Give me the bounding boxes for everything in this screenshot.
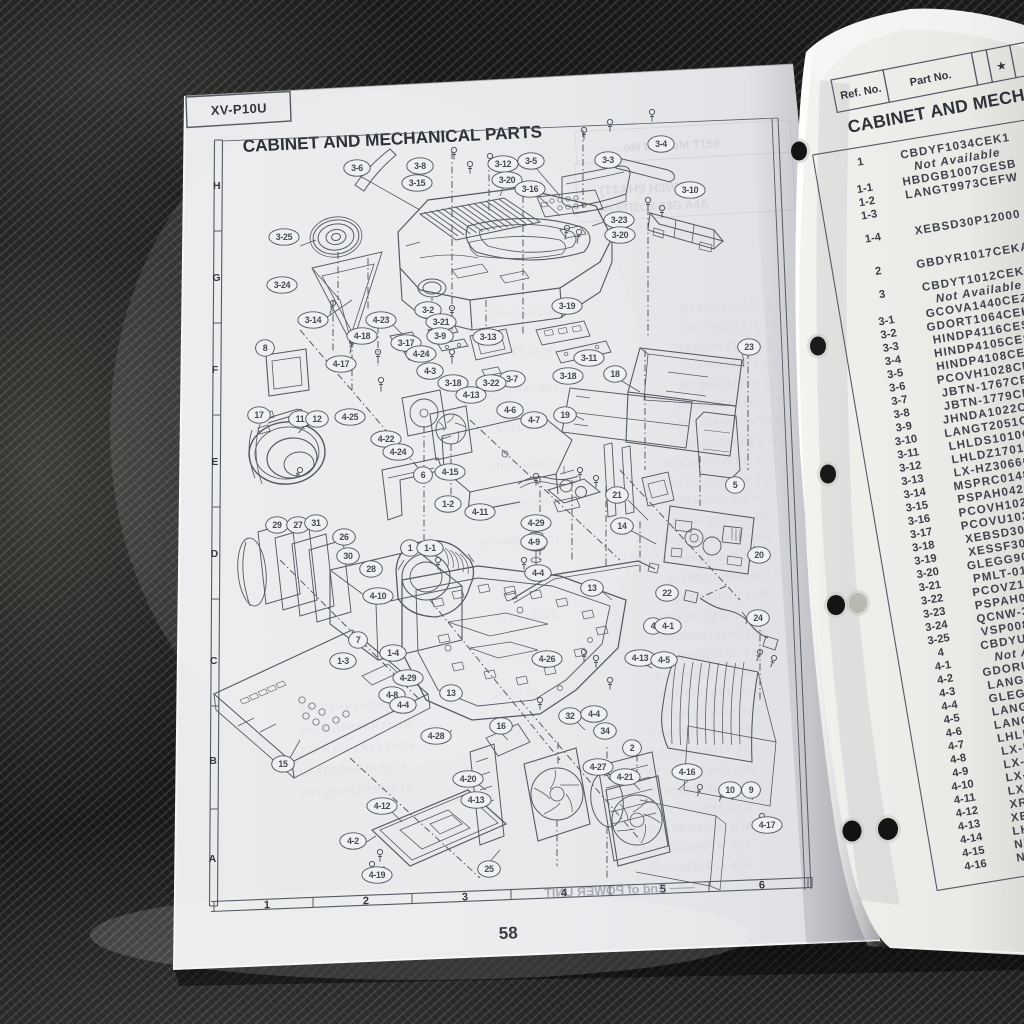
svg-text:2: 2	[363, 895, 370, 907]
svg-text:5: 5	[733, 480, 738, 490]
svg-text:3-21: 3-21	[433, 317, 450, 327]
svg-text:1-3: 1-3	[860, 208, 878, 222]
svg-text:4-11: 4-11	[472, 507, 488, 517]
svg-text:11: 11	[296, 414, 305, 424]
svg-text:4-27: 4-27	[590, 762, 607, 772]
svg-text:22: 22	[662, 588, 672, 598]
svg-text:4-12: 4-12	[374, 801, 391, 811]
svg-text:E: E	[211, 456, 218, 468]
svg-text:3-17: 3-17	[398, 338, 415, 348]
svg-text:4-29: 4-29	[528, 518, 545, 528]
svg-text:4-24: 4-24	[413, 349, 430, 359]
svg-text:3-12: 3-12	[495, 159, 512, 169]
svg-text:16: 16	[496, 721, 506, 731]
svg-text:3-8: 3-8	[414, 161, 426, 171]
svg-text:4-3: 4-3	[424, 366, 436, 376]
svg-text:58: 58	[498, 923, 518, 943]
svg-text:4-10: 4-10	[370, 591, 387, 601]
svg-text:4-13: 4-13	[632, 653, 649, 663]
svg-text:26: 26	[339, 532, 349, 542]
svg-text:3-24: 3-24	[274, 280, 291, 290]
svg-text:8: 8	[263, 343, 268, 353]
svg-text:3-5: 3-5	[886, 367, 904, 381]
svg-text:4-6: 4-6	[504, 405, 516, 415]
svg-text:3-6: 3-6	[888, 380, 906, 394]
svg-text:4-29: 4-29	[400, 673, 417, 683]
svg-text:7: 7	[356, 635, 361, 645]
svg-text:4-17: 4-17	[333, 359, 350, 369]
svg-text:3-22: 3-22	[483, 378, 500, 388]
svg-text:3-15: 3-15	[409, 178, 426, 188]
svg-text:1-3: 1-3	[337, 656, 349, 666]
svg-text:6: 6	[421, 470, 426, 480]
svg-text:3-20: 3-20	[612, 230, 629, 240]
svg-text:1: 1	[408, 543, 413, 553]
svg-text:3-20: 3-20	[499, 175, 516, 185]
svg-text:4-16: 4-16	[679, 767, 696, 777]
svg-text:4-9: 4-9	[528, 537, 540, 547]
svg-text:4-8: 4-8	[949, 752, 967, 766]
svg-text:30: 30	[343, 551, 353, 561]
svg-text:4-15: 4-15	[442, 467, 459, 477]
svg-text:32: 32	[565, 711, 575, 721]
svg-text:3-2: 3-2	[422, 305, 434, 315]
svg-text:3-9: 3-9	[434, 331, 446, 341]
svg-text:3-4: 3-4	[655, 139, 667, 149]
svg-text:3-18: 3-18	[445, 378, 462, 388]
svg-text:B: B	[209, 755, 217, 767]
svg-text:18: 18	[610, 369, 620, 379]
svg-text:15: 15	[278, 759, 288, 769]
svg-text:XV-P10U: XV-P10U	[210, 100, 267, 118]
svg-text:3-5: 3-5	[525, 156, 537, 166]
svg-text:F: F	[212, 364, 219, 376]
svg-text:4-9: 4-9	[951, 765, 969, 779]
svg-text:23: 23	[744, 342, 754, 352]
svg-text:1-2: 1-2	[858, 195, 876, 209]
svg-text:4-19: 4-19	[369, 870, 386, 880]
svg-text:31: 31	[311, 518, 321, 528]
svg-text:3-18: 3-18	[560, 371, 577, 381]
svg-text:3-19: 3-19	[559, 301, 576, 311]
svg-text:4-24: 4-24	[390, 447, 407, 457]
svg-text:A: A	[209, 853, 217, 865]
svg-text:x: x	[598, 877, 606, 891]
svg-text:6: 6	[759, 879, 766, 891]
svg-text:34: 34	[600, 726, 610, 736]
svg-text:4-7: 4-7	[528, 415, 540, 425]
svg-text:4-13: 4-13	[463, 390, 480, 400]
svg-text:13: 13	[446, 688, 456, 698]
svg-text:3-13: 3-13	[480, 332, 497, 342]
svg-text:3-9: 3-9	[895, 420, 913, 434]
svg-text:28: 28	[366, 564, 376, 574]
svg-text:4-20: 4-20	[460, 774, 477, 784]
svg-text:1-1: 1-1	[856, 182, 874, 196]
svg-text:4-5: 4-5	[658, 655, 670, 665]
svg-text:3-7: 3-7	[506, 374, 518, 384]
svg-text:3-23: 3-23	[611, 215, 628, 225]
svg-text:9: 9	[749, 785, 754, 795]
svg-text:3-3: 3-3	[602, 155, 614, 165]
svg-text:25: 25	[484, 864, 494, 874]
svg-text:4-21: 4-21	[617, 772, 634, 782]
svg-text:1-1: 1-1	[424, 543, 436, 553]
svg-text:4-18: 4-18	[354, 331, 371, 341]
svg-text:17: 17	[254, 410, 264, 420]
svg-text:3-25: 3-25	[276, 232, 293, 242]
svg-text:2: 2	[630, 743, 635, 753]
svg-text:4-23: 4-23	[373, 315, 390, 325]
svg-text:3-14: 3-14	[305, 315, 322, 325]
svg-text:4-25: 4-25	[342, 412, 359, 422]
svg-text:29: 29	[272, 520, 282, 530]
svg-text:3-16: 3-16	[522, 184, 539, 194]
svg-text:3-11: 3-11	[581, 353, 597, 363]
svg-text:1: 1	[264, 899, 271, 911]
svg-text:C: C	[210, 655, 218, 667]
svg-text:19: 19	[560, 410, 570, 420]
svg-text:3-3: 3-3	[882, 341, 900, 355]
svg-text:13: 13	[587, 583, 597, 593]
svg-text:H: H	[213, 180, 221, 192]
svg-text:10: 10	[725, 785, 735, 795]
svg-text:4-3: 4-3	[938, 686, 956, 700]
svg-text:4-4: 4-4	[588, 709, 600, 719]
svg-text:4-2: 4-2	[347, 836, 359, 846]
svg-text:G: G	[212, 272, 220, 284]
svg-text:4-4: 4-4	[532, 568, 544, 578]
svg-text:14: 14	[617, 521, 627, 531]
svg-text:3-6: 3-6	[351, 163, 363, 173]
svg-text:27: 27	[293, 520, 303, 530]
svg-text:24: 24	[753, 613, 763, 623]
svg-text:4-1: 4-1	[662, 621, 674, 631]
svg-text:1-4: 1-4	[387, 648, 399, 658]
svg-text:4-22: 4-22	[378, 434, 395, 444]
svg-text:12: 12	[312, 414, 322, 424]
svg-text:20: 20	[754, 550, 764, 560]
svg-text:4-26: 4-26	[539, 654, 556, 664]
svg-text:4-17: 4-17	[759, 820, 776, 830]
svg-text:4-28: 4-28	[428, 731, 445, 741]
svg-text:1-2: 1-2	[442, 499, 454, 509]
svg-text:4-13: 4-13	[468, 795, 485, 805]
svg-text:4-4: 4-4	[397, 700, 409, 710]
svg-text:D: D	[211, 548, 219, 560]
svg-text:3-10: 3-10	[682, 185, 699, 195]
svg-text:21: 21	[612, 490, 622, 500]
svg-text:3: 3	[462, 891, 469, 903]
